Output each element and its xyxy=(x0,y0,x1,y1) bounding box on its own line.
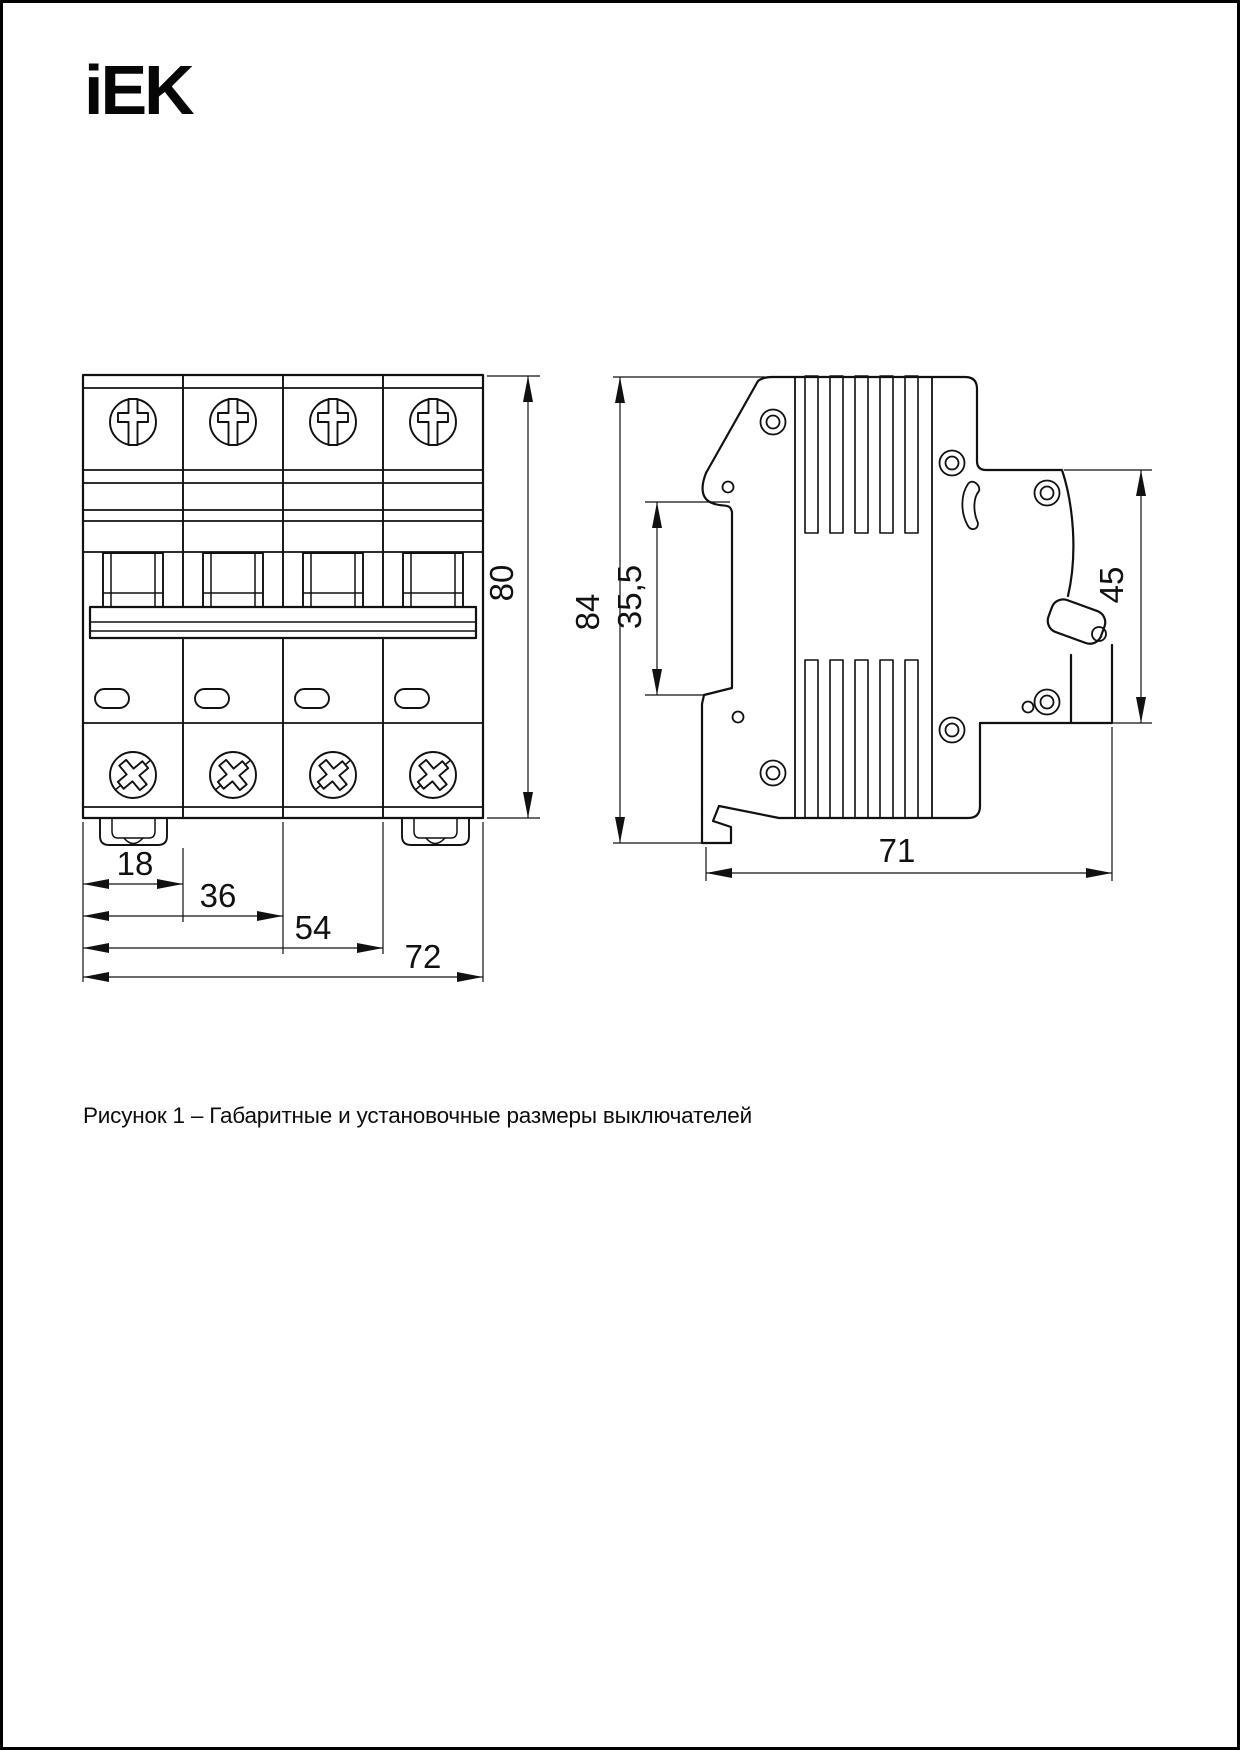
rivet-icon xyxy=(1035,690,1060,715)
indicator-window xyxy=(395,689,429,708)
dim-label-36: 36 xyxy=(200,877,237,914)
front-toggle-tie-bar xyxy=(90,607,476,638)
din-tab xyxy=(100,818,167,845)
dim-label-54: 54 xyxy=(295,909,332,946)
indicator-window xyxy=(195,689,229,708)
iek-logo-text: iEK xyxy=(84,51,194,129)
dimension-45 xyxy=(1136,470,1146,723)
side-vent-slots-bottom xyxy=(805,660,918,818)
front-module-dividers xyxy=(183,375,383,818)
toggle-handle xyxy=(303,553,363,607)
toggle-handle xyxy=(103,553,163,607)
iek-logo: iEK xyxy=(84,51,194,129)
side-body-outline-upper xyxy=(706,377,1073,596)
dim-label-45: 45 xyxy=(1093,567,1130,604)
din-tab xyxy=(402,818,469,845)
rivet-icon xyxy=(1035,481,1060,506)
screw-icon xyxy=(210,399,256,445)
side-rivets xyxy=(723,410,1060,786)
rivet-icon xyxy=(940,451,965,476)
screw-icon xyxy=(210,752,256,798)
dim-label-80: 80 xyxy=(483,565,520,602)
dimension-54 xyxy=(83,943,383,953)
screw-icon xyxy=(110,399,156,445)
figure-caption: Рисунок 1 – Габаритные и установочные ра… xyxy=(83,1103,752,1129)
side-catch-block xyxy=(980,645,1112,723)
dimension-35-5 xyxy=(652,502,662,695)
screw-icon xyxy=(410,752,456,798)
front-indicator-windows xyxy=(95,689,429,708)
rivet-icon xyxy=(940,718,965,743)
front-extension-lines xyxy=(83,376,540,982)
toggle-handle xyxy=(203,553,263,607)
side-din-channel xyxy=(702,473,732,843)
dim-label-71: 71 xyxy=(879,832,916,869)
rivet-icon xyxy=(761,761,786,786)
toggle-handle xyxy=(403,553,463,607)
rivet-icon xyxy=(761,410,786,435)
dimension-annotations: 18 36 54 72 80 84 35,5 45 71 xyxy=(83,376,1152,982)
indicator-window xyxy=(295,689,329,708)
front-view-drawing xyxy=(83,375,483,845)
side-extension-lines xyxy=(613,377,1152,881)
screw-icon xyxy=(410,399,456,445)
dim-label-84: 84 xyxy=(569,594,606,631)
front-din-tabs xyxy=(100,818,469,845)
pin-hole xyxy=(1023,702,1034,713)
screw-icon xyxy=(110,752,156,798)
dim-label-35-5: 35,5 xyxy=(611,565,648,629)
dim-label-72: 72 xyxy=(405,938,442,975)
side-vent-slots-top xyxy=(805,376,918,533)
technical-drawing: iEK xyxy=(0,0,1240,1750)
pin-hole xyxy=(733,712,744,723)
screw-icon xyxy=(310,752,356,798)
dimension-71 xyxy=(706,868,1112,878)
side-seam-lines xyxy=(795,377,932,818)
side-curved-slot xyxy=(962,482,979,529)
indicator-window xyxy=(95,689,129,708)
dim-label-18: 18 xyxy=(117,845,154,882)
pin-hole xyxy=(723,482,734,493)
dimension-80 xyxy=(523,376,533,818)
document-page: iEK xyxy=(0,0,1240,1750)
screw-icon xyxy=(310,399,356,445)
side-view-drawing xyxy=(702,376,1112,843)
